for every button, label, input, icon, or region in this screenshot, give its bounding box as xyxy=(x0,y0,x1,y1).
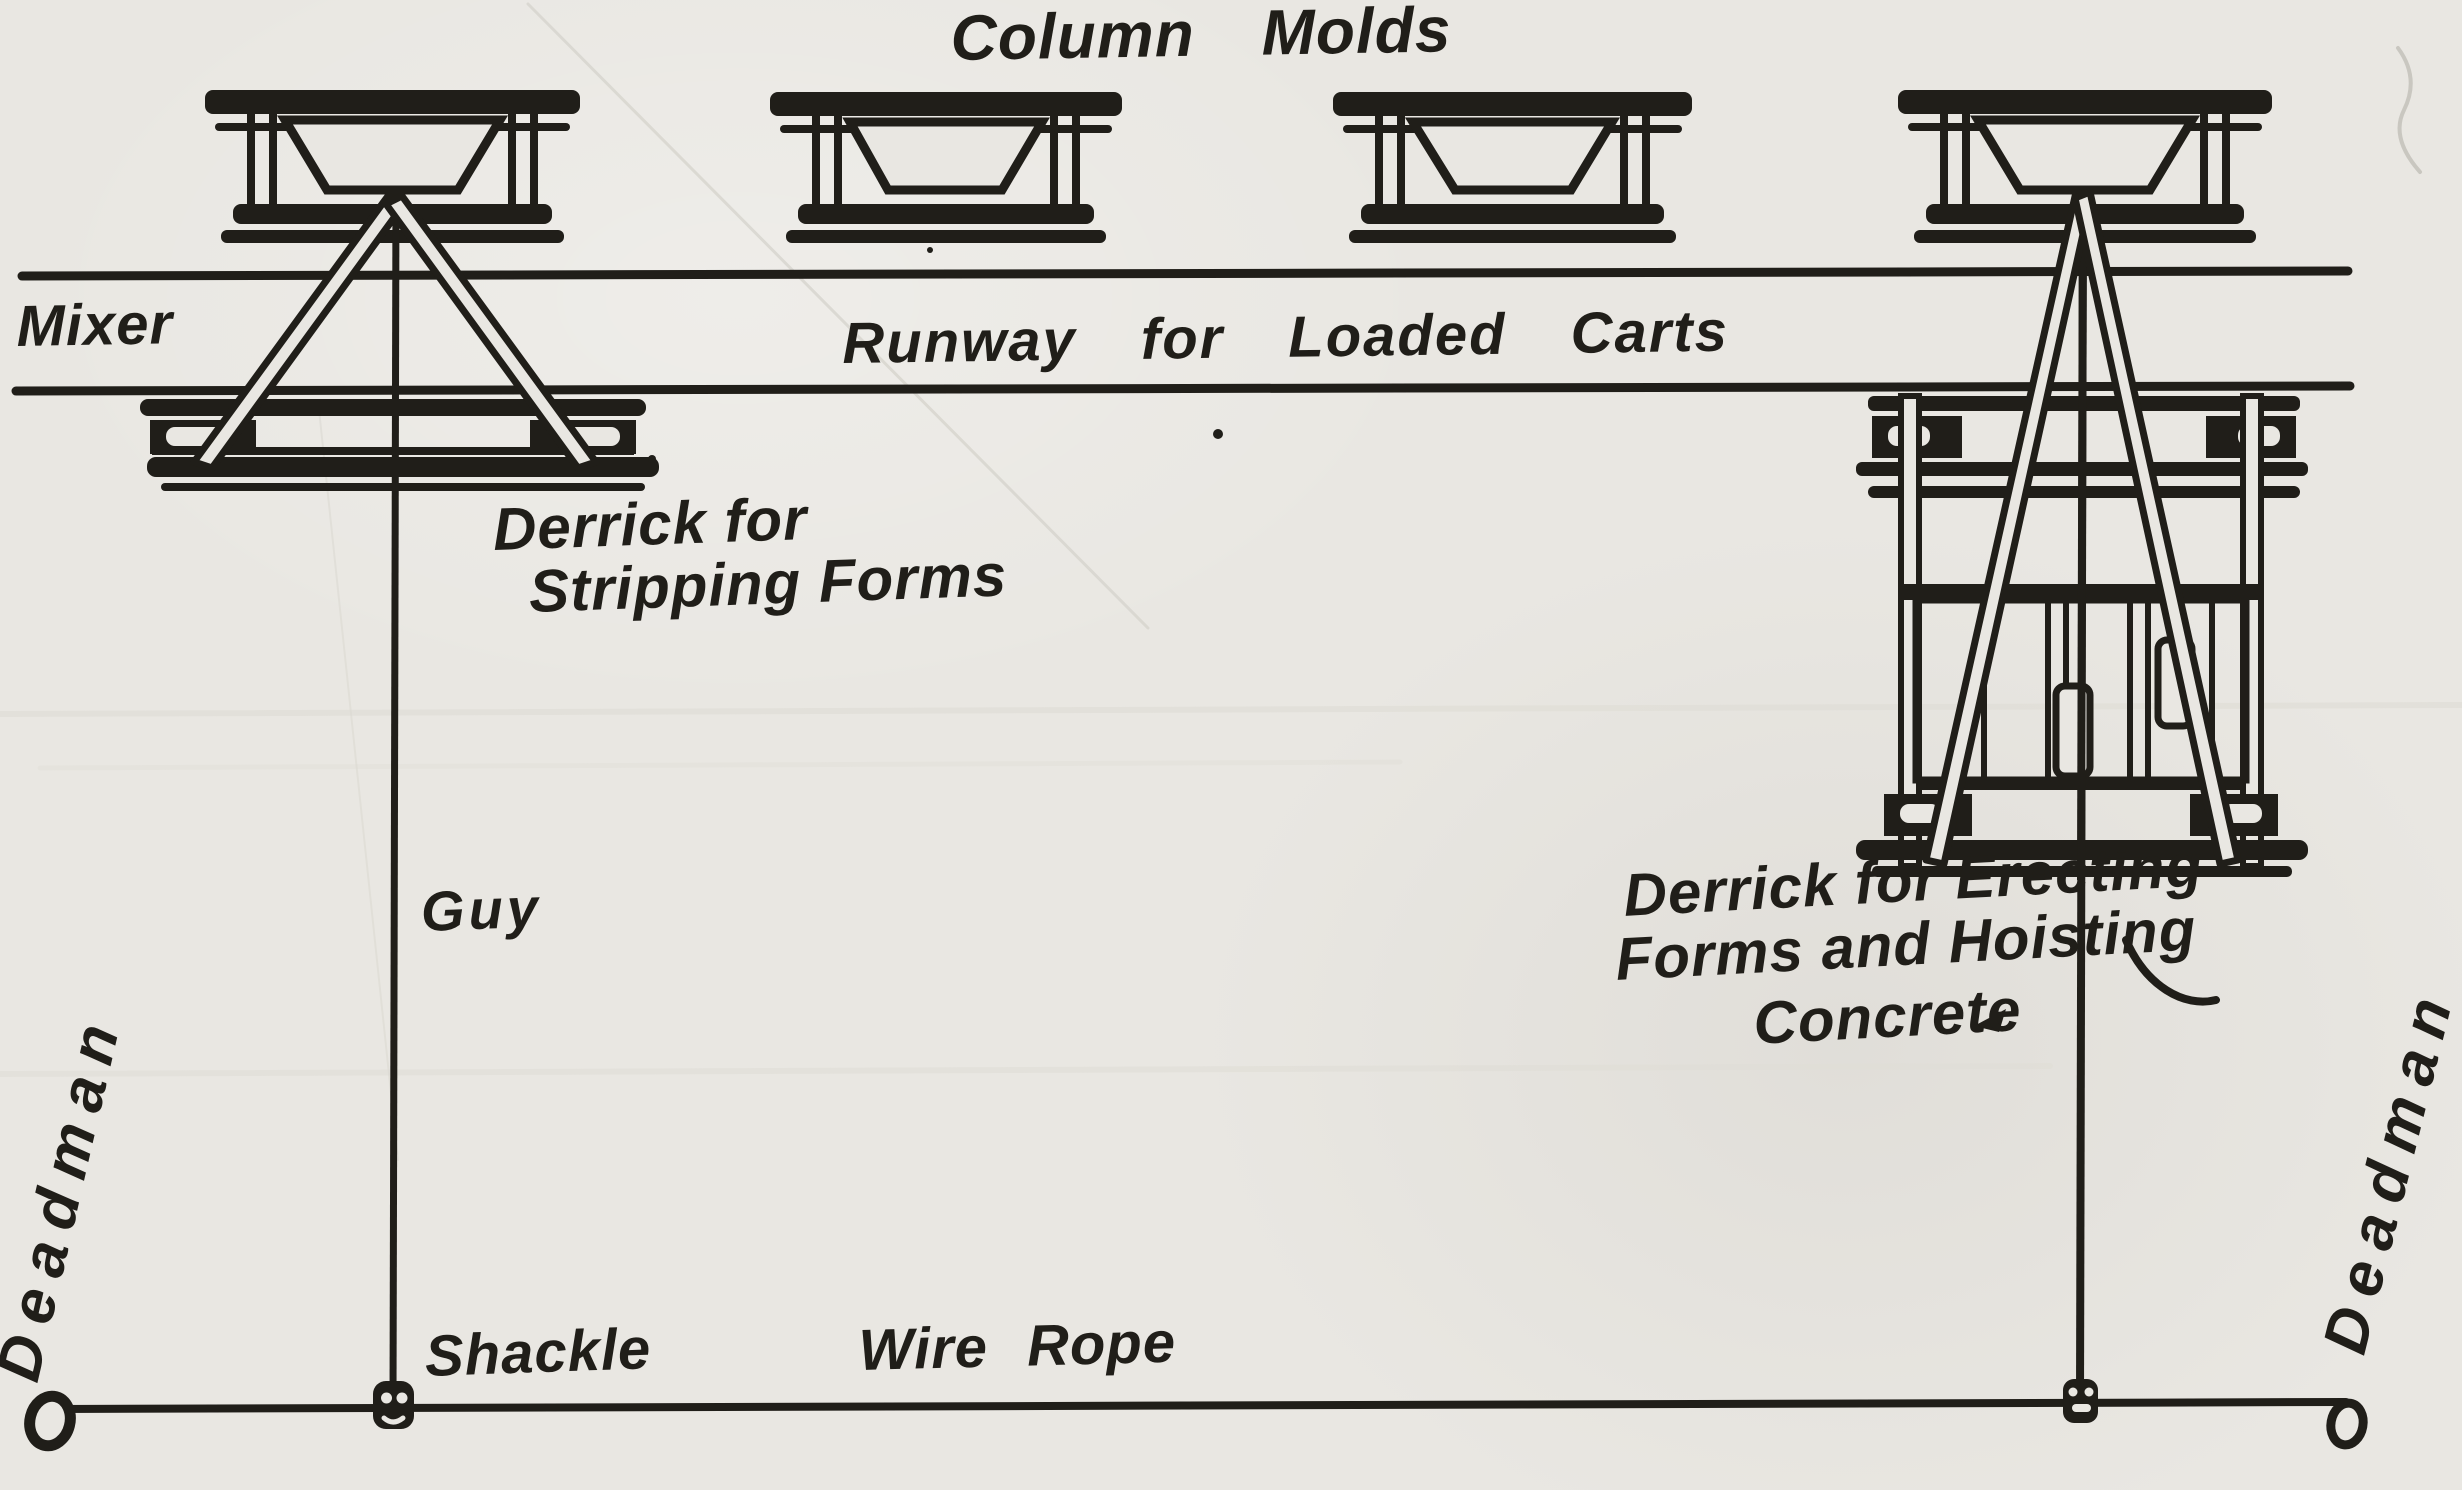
label-shackle: Shackle xyxy=(424,1320,652,1386)
column-mold-3 xyxy=(1333,92,1692,243)
column-mold-2 xyxy=(770,92,1122,243)
guy-line-right-overlay xyxy=(2081,188,2083,880)
label-derrick-left-line2: Stripping Forms xyxy=(528,545,1008,622)
scanned-diagram-page: Column Molds Mixer Runway for Loaded Car… xyxy=(0,0,2462,1490)
shackle-right xyxy=(2063,1379,2098,1423)
label-guy: Guy xyxy=(420,880,543,940)
label-wire-rope: Wire Rope xyxy=(858,1314,1177,1380)
label-derrick-right-line3: Concrete xyxy=(1752,980,2023,1054)
runway-bottom-line xyxy=(16,386,2350,391)
deadman-anchor-right xyxy=(2328,1401,2367,1448)
shackle-left xyxy=(373,1381,414,1429)
label-mixer: Mixer xyxy=(16,295,174,356)
deadman-anchor-left xyxy=(25,1392,76,1450)
diagram-line-art xyxy=(0,0,2462,1490)
label-runway: Runway for Loaded Carts xyxy=(842,303,1729,373)
runway-top-line xyxy=(22,271,2348,276)
guy-line-left xyxy=(393,188,396,1402)
label-column-molds: Column Molds xyxy=(950,0,1452,70)
